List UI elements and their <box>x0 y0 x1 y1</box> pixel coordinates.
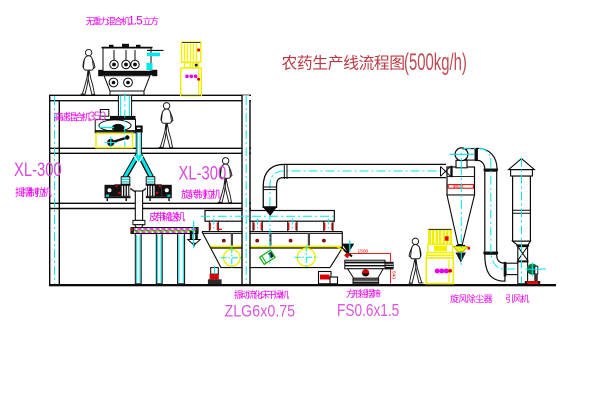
svg-text:农药生产线流程图: 农药生产线流程图 <box>282 54 405 72</box>
svg-text:ZLG6x0.75: ZLG6x0.75 <box>225 302 296 320</box>
svg-text:旋转制粒机: 旋转制粒机 <box>181 188 221 201</box>
svg-text:XL-300: XL-300 <box>14 159 62 180</box>
svg-text:1500: 1500 <box>358 248 369 254</box>
svg-text:Φ500: Φ500 <box>453 184 464 189</box>
svg-text:无重力混合机1.5 立方: 无重力混合机1.5 立方 <box>86 14 159 28</box>
svg-text:XL-300: XL-300 <box>179 163 227 184</box>
svg-text:540: 540 <box>391 271 397 279</box>
svg-text:振动流化床干燥机: 振动流化床干燥机 <box>234 289 289 300</box>
svg-text:FS0.6x1.5: FS0.6x1.5 <box>337 301 399 320</box>
svg-text:(500kg/h): (500kg/h) <box>404 49 467 75</box>
svg-text:摇摆制粒机: 摇摆制粒机 <box>15 186 52 199</box>
svg-text:旋风除尘器: 旋风除尘器 <box>450 293 493 304</box>
svg-text:引风机: 引风机 <box>505 293 529 304</box>
svg-text:皮带输送机: 皮带输送机 <box>149 211 185 224</box>
svg-text:方形摇摆筛: 方形摇摆筛 <box>346 288 381 299</box>
svg-text:高速混合机350: 高速混合机350 <box>54 109 106 123</box>
